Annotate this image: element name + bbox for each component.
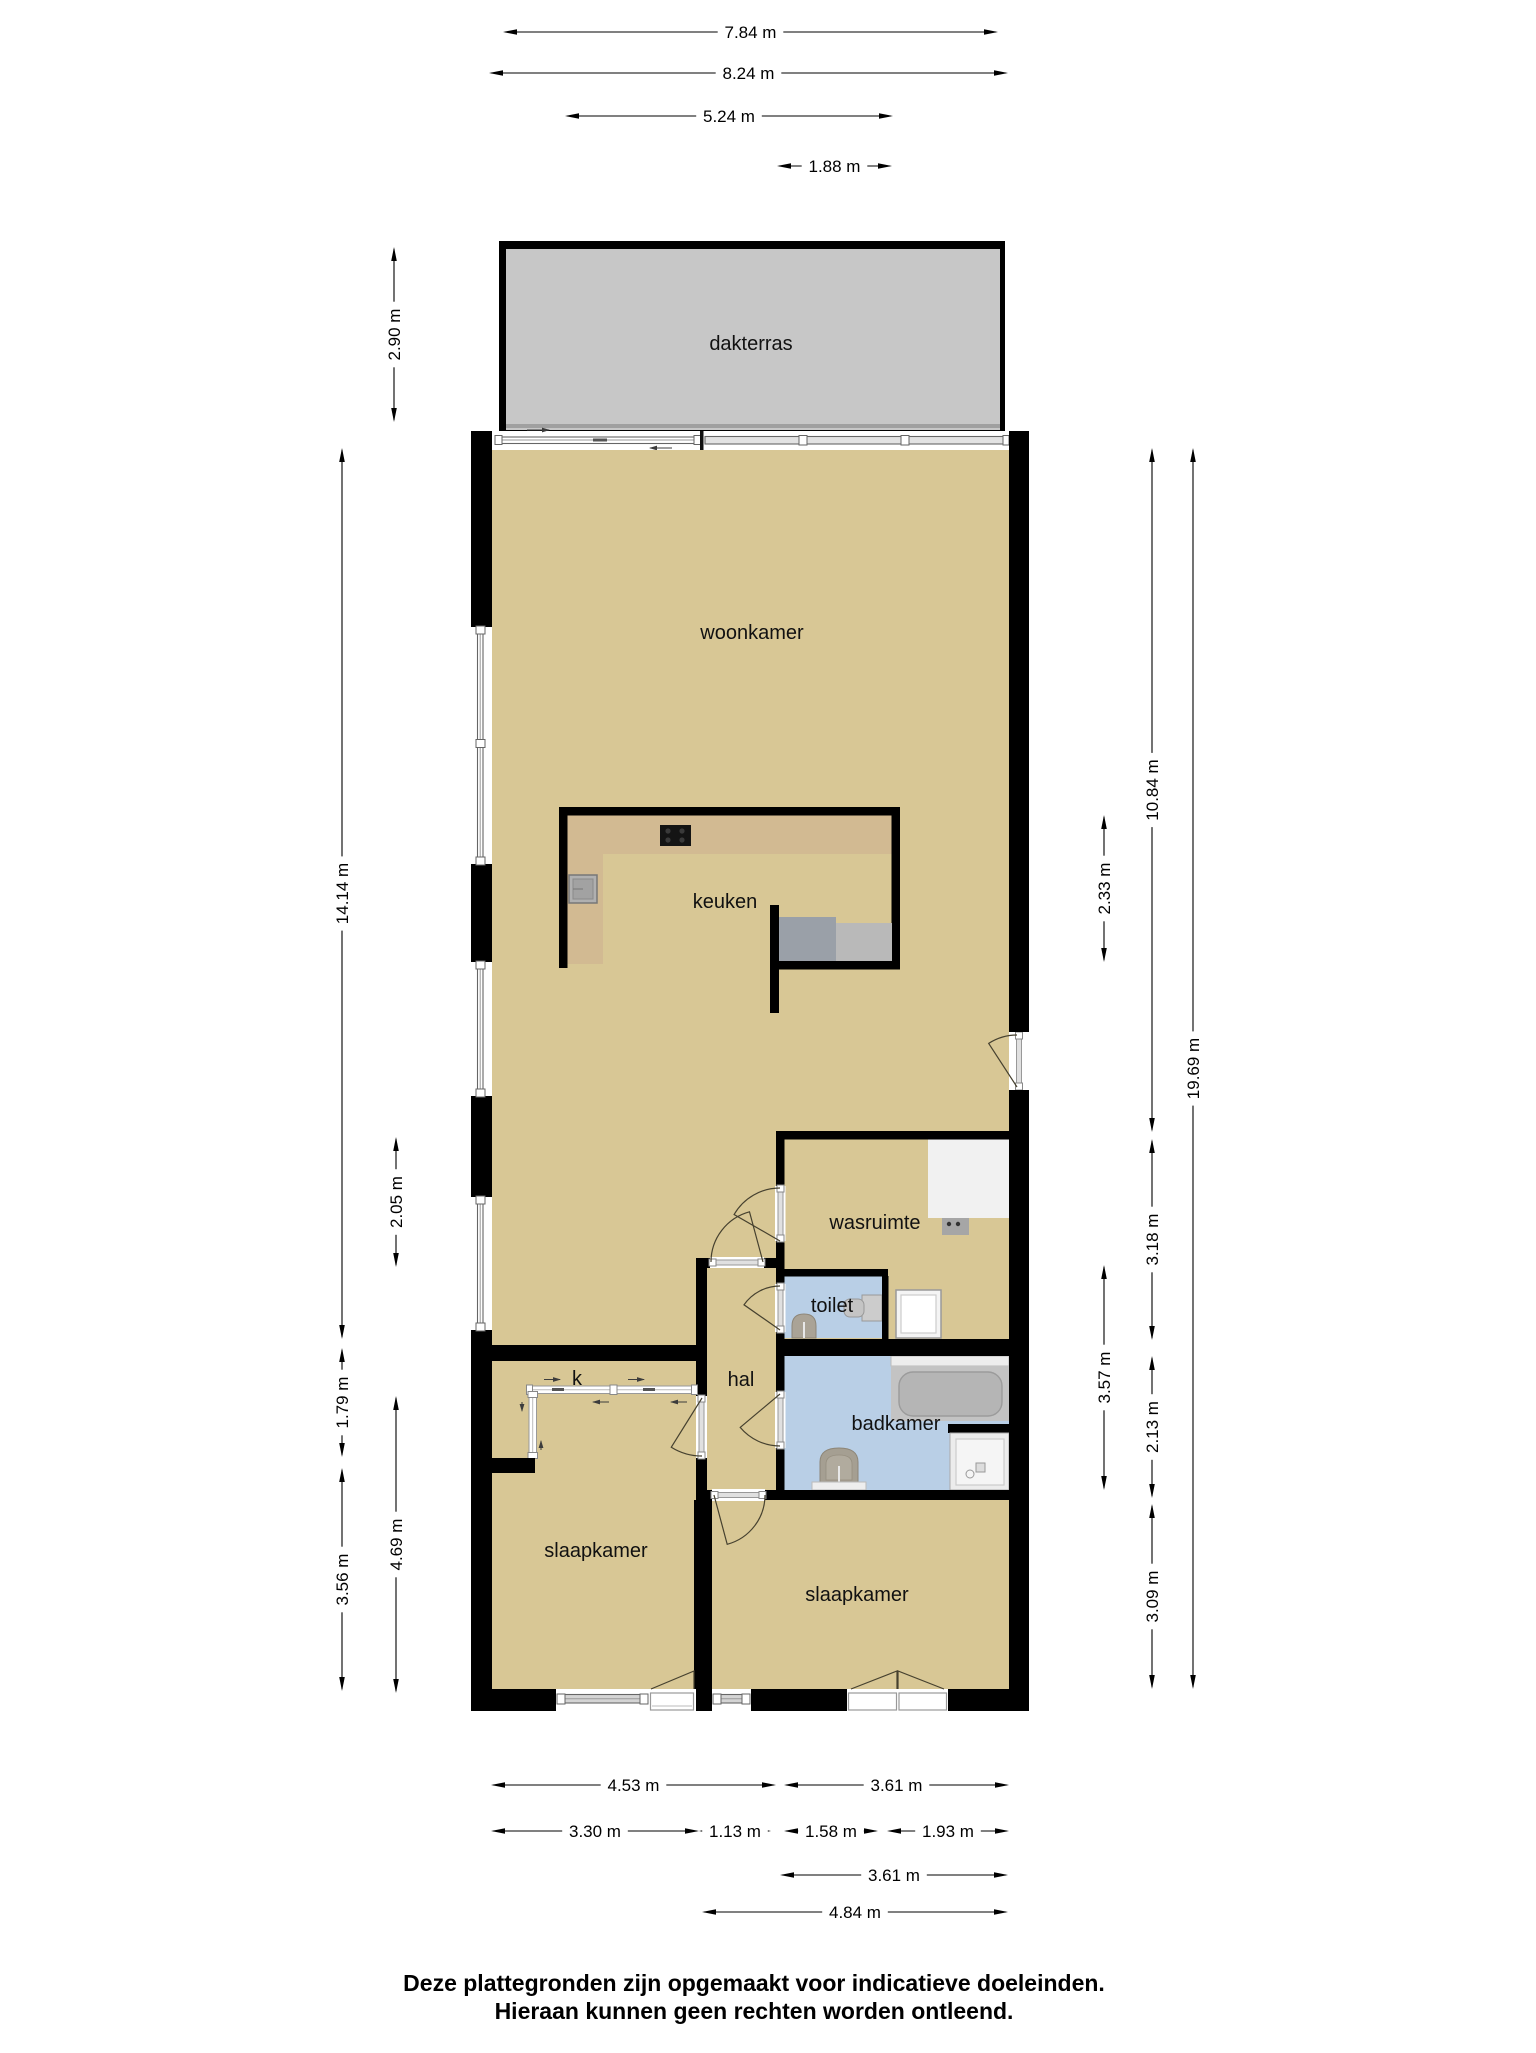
svg-text:keuken: keuken — [693, 891, 758, 913]
svg-text:badkamer: badkamer — [852, 1413, 941, 1435]
svg-text:19.69 m: 19.69 m — [1184, 1038, 1203, 1099]
svg-text:1.93 m: 1.93 m — [922, 1822, 974, 1841]
svg-text:14.14 m: 14.14 m — [333, 863, 352, 924]
svg-text:5.24 m: 5.24 m — [703, 107, 755, 126]
svg-text:10.84 m: 10.84 m — [1143, 759, 1162, 820]
svg-text:3.18 m: 3.18 m — [1143, 1214, 1162, 1266]
svg-text:2.05 m: 2.05 m — [387, 1176, 406, 1228]
svg-text:hal: hal — [728, 1369, 755, 1391]
svg-text:wasruimte: wasruimte — [828, 1212, 920, 1234]
svg-text:3.57 m: 3.57 m — [1095, 1352, 1114, 1404]
svg-text:slaapkamer: slaapkamer — [805, 1584, 909, 1606]
svg-text:1.58 m: 1.58 m — [805, 1822, 857, 1841]
svg-text:Hieraan kunnen geen rechten wo: Hieraan kunnen geen rechten worden ontle… — [495, 1998, 1014, 2024]
svg-text:1.88 m: 1.88 m — [809, 157, 861, 176]
svg-text:4.69 m: 4.69 m — [387, 1519, 406, 1571]
svg-text:4.84 m: 4.84 m — [829, 1903, 881, 1922]
svg-text:1.13 m: 1.13 m — [709, 1822, 761, 1841]
svg-text:dakterras: dakterras — [709, 333, 792, 355]
svg-text:2.33 m: 2.33 m — [1095, 863, 1114, 915]
svg-text:4.53 m: 4.53 m — [608, 1776, 660, 1795]
svg-text:7.84 m: 7.84 m — [725, 23, 777, 42]
svg-text:1.79 m: 1.79 m — [333, 1377, 352, 1429]
svg-text:3.30 m: 3.30 m — [569, 1822, 621, 1841]
svg-text:8.24 m: 8.24 m — [723, 64, 775, 83]
svg-text:k: k — [572, 1368, 583, 1390]
svg-text:3.61 m: 3.61 m — [871, 1776, 923, 1795]
svg-text:3.09 m: 3.09 m — [1143, 1571, 1162, 1623]
svg-text:2.13 m: 2.13 m — [1143, 1401, 1162, 1453]
svg-text:3.61 m: 3.61 m — [868, 1866, 920, 1885]
svg-text:3.56 m: 3.56 m — [333, 1554, 352, 1606]
svg-text:toilet: toilet — [811, 1295, 854, 1317]
svg-text:Deze plattegronden zijn opgema: Deze plattegronden zijn opgemaakt voor i… — [403, 1970, 1105, 1996]
svg-text:slaapkamer: slaapkamer — [544, 1540, 648, 1562]
svg-text:woonkamer: woonkamer — [699, 622, 804, 644]
svg-text:2.90 m: 2.90 m — [385, 309, 404, 361]
